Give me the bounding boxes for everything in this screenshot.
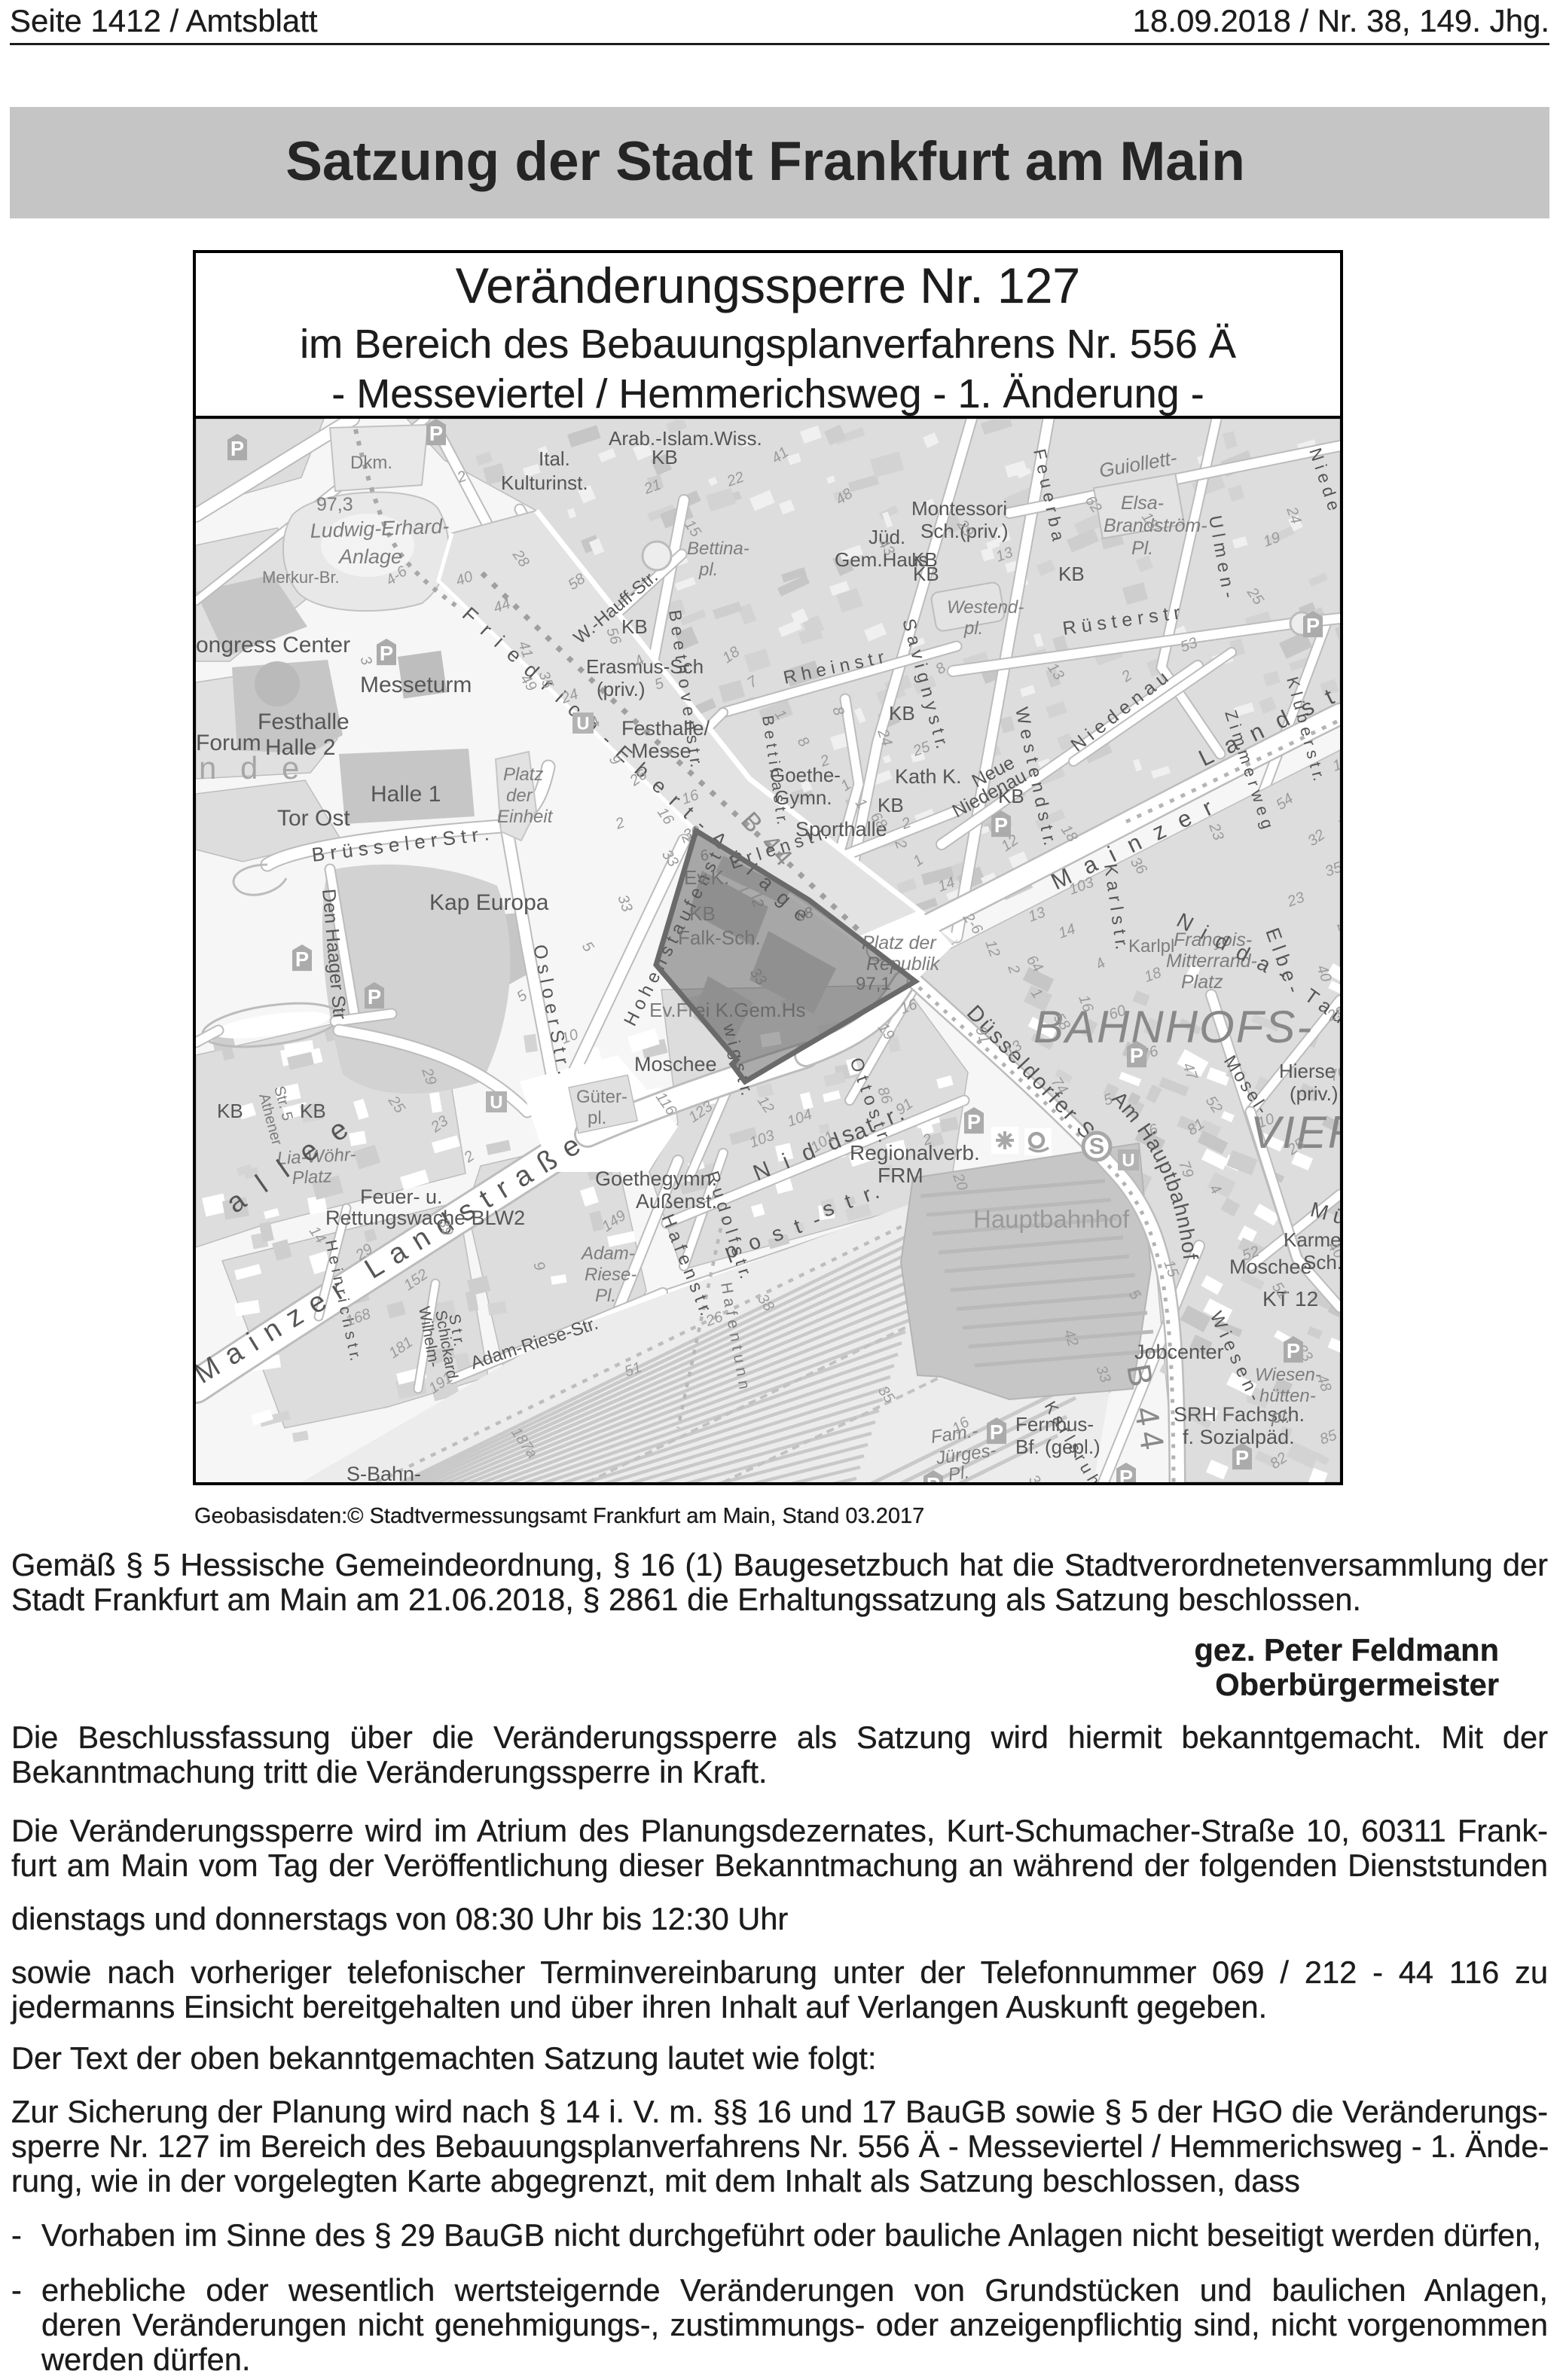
svg-text:KB: KB <box>300 1100 326 1122</box>
svg-text:Karlpl: Karlpl <box>1128 936 1174 957</box>
svg-text:KB: KB <box>889 702 915 725</box>
svg-text:pl.: pl. <box>1271 1407 1290 1427</box>
svg-text:P: P <box>380 642 393 665</box>
svg-text:Hauptbahnhof: Hauptbahnhof <box>973 1205 1130 1233</box>
svg-text:KB: KB <box>217 1100 243 1122</box>
svg-text:Pl.: Pl. <box>1131 538 1153 559</box>
svg-text:Jobcenter: Jobcenter <box>1134 1341 1224 1363</box>
svg-text:Güter-: Güter- <box>576 1087 627 1107</box>
svg-text:Merkur-Br.: Merkur-Br. <box>262 568 340 587</box>
svg-text:Halle 1: Halle 1 <box>371 782 441 807</box>
svg-text:Kulturinst.: Kulturinst. <box>501 471 588 494</box>
svg-text:Ital.: Ital. <box>539 447 570 470</box>
svg-text:Goethegymn.: Goethegymn. <box>595 1167 717 1190</box>
svg-text:Einheit: Einheit <box>497 807 554 827</box>
svg-text:U: U <box>1122 1150 1134 1170</box>
svg-text:P: P <box>1235 1446 1249 1469</box>
svg-text:97,3: 97,3 <box>316 494 353 515</box>
svg-text:P: P <box>967 1110 981 1134</box>
svg-text:Elsa-: Elsa- <box>1121 493 1164 514</box>
svg-text:Kath K.: Kath K. <box>895 765 962 788</box>
svg-text:Außenst.: Außenst. <box>636 1190 717 1213</box>
svg-text:U: U <box>490 1092 502 1112</box>
svg-text:P: P <box>990 1420 1003 1444</box>
svg-text:Messeturm: Messeturm <box>360 673 472 697</box>
svg-text:f. Sozialpäd.: f. Sozialpäd. <box>1183 1426 1295 1448</box>
svg-text:Arab.-Islam.Wiss.: Arab.-Islam.Wiss. <box>609 427 762 450</box>
svg-text:n d e: n d e <box>199 750 307 786</box>
svg-text:KB: KB <box>652 446 678 468</box>
svg-text:P: P <box>1306 614 1320 637</box>
svg-text:Platz: Platz <box>503 764 543 785</box>
svg-text:Gymn.: Gymn. <box>774 786 832 809</box>
svg-text:hütten-: hütten- <box>1259 1386 1316 1406</box>
svg-text:Moschee: Moschee <box>634 1053 717 1076</box>
svg-text:(priv.): (priv.) <box>597 678 646 700</box>
svg-text:Tor Ost: Tor Ost <box>277 806 350 831</box>
svg-text:P: P <box>295 947 309 971</box>
svg-text:Dkm.: Dkm. <box>350 453 392 473</box>
svg-text:FRM: FRM <box>878 1164 923 1187</box>
svg-text:pl.: pl. <box>698 560 718 580</box>
svg-text:P: P <box>1130 1044 1143 1067</box>
svg-text:pl.: pl. <box>588 1108 606 1128</box>
svg-text:KB: KB <box>998 785 1024 807</box>
svg-text:U: U <box>576 713 589 734</box>
svg-text:P: P <box>368 985 381 1008</box>
svg-text:Moschee: Moschee <box>1229 1256 1312 1278</box>
svg-text:Wiesen-: Wiesen- <box>1255 1365 1321 1385</box>
svg-text:KB: KB <box>1058 563 1085 585</box>
svg-text:S: S <box>1089 1134 1104 1159</box>
svg-text:Adam-: Adam- <box>580 1243 635 1264</box>
svg-text:P: P <box>429 422 443 445</box>
svg-text:Pl.: Pl. <box>947 1462 971 1482</box>
svg-text:Montessori: Montessori <box>911 497 1007 520</box>
svg-text:ongress Center: ongress Center <box>196 633 350 658</box>
svg-text:P: P <box>927 1473 940 1482</box>
svg-text:Feuer- u.: Feuer- u. <box>360 1185 443 1208</box>
svg-text:S-Bahn-: S-Bahn- <box>346 1463 421 1482</box>
svg-text:(priv.): (priv.) <box>1290 1082 1339 1105</box>
svg-text:P: P <box>994 813 1008 837</box>
svg-text:Pl.: Pl. <box>595 1286 616 1306</box>
svg-text:Riese-: Riese- <box>585 1265 637 1285</box>
svg-text:Regionalverb.: Regionalverb. <box>850 1141 980 1164</box>
svg-text:Westend-: Westend- <box>947 597 1024 618</box>
svg-text:BAHNHOFS-: BAHNHOFS- <box>1033 1002 1313 1052</box>
svg-text:P: P <box>1287 1339 1300 1362</box>
svg-text:KB: KB <box>913 563 939 585</box>
svg-text:Kap Europa: Kap Europa <box>429 890 549 915</box>
svg-text:der: der <box>506 786 533 806</box>
svg-text:Platz: Platz <box>1181 972 1223 993</box>
svg-text:P: P <box>1119 1466 1133 1482</box>
svg-text:Festhalle: Festhalle <box>258 709 350 734</box>
svg-text:KB: KB <box>621 615 648 638</box>
svg-text:P: P <box>230 437 244 460</box>
svg-text:Bettina-: Bettina- <box>687 539 749 559</box>
svg-text:Anlage: Anlage <box>337 545 402 568</box>
svg-text:pl.: pl. <box>963 618 983 639</box>
